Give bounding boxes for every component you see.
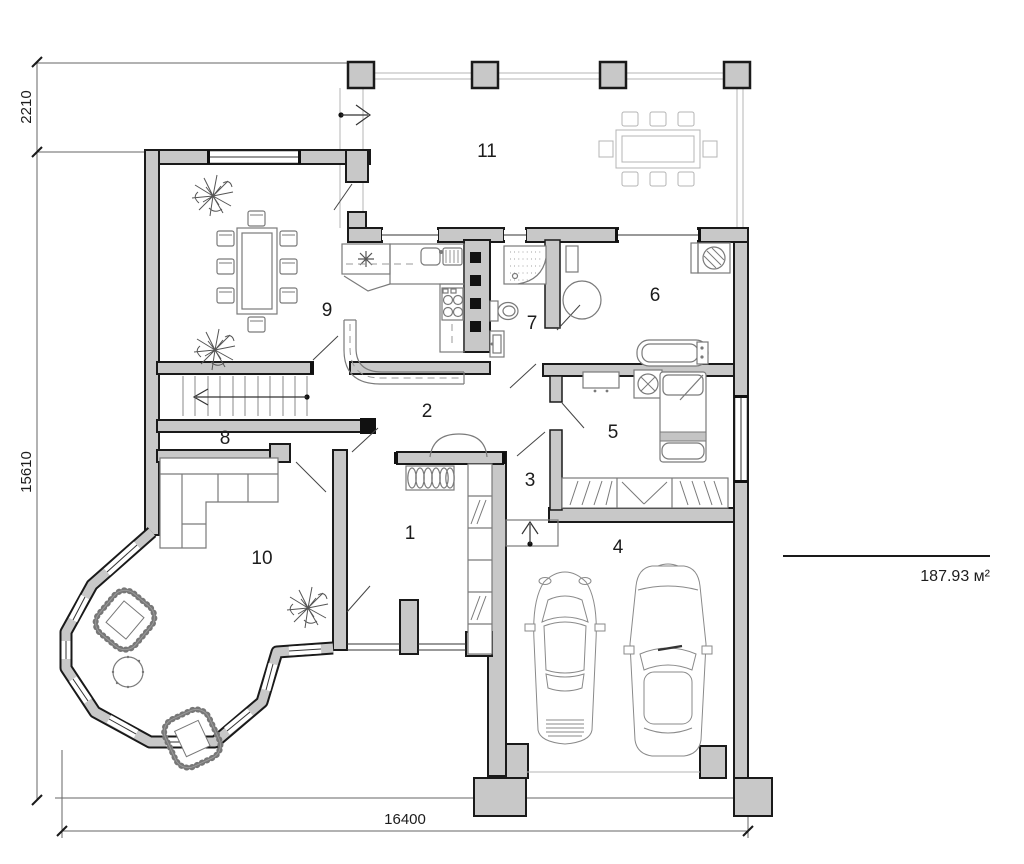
shower-icon bbox=[504, 246, 546, 284]
bedroom-5 bbox=[562, 370, 728, 508]
terrace-dining-table-icon bbox=[599, 112, 717, 186]
bathroom-7 bbox=[490, 246, 546, 357]
total-area-annotation: 187.93 м² bbox=[783, 556, 991, 585]
washing-machine-icon bbox=[691, 243, 730, 273]
dining-table-icon bbox=[217, 211, 297, 332]
terrace-column bbox=[472, 62, 498, 88]
floor-plan-page: 2210 15610 16400 bbox=[0, 0, 1024, 864]
washbasin-icon bbox=[490, 331, 504, 357]
room-label-5: 5 bbox=[608, 422, 619, 443]
staircase bbox=[183, 376, 310, 416]
dining-area bbox=[192, 175, 297, 370]
toilet-icon bbox=[490, 301, 518, 321]
car-icon bbox=[525, 572, 605, 744]
terrace-column bbox=[724, 62, 750, 88]
room-label-4: 4 bbox=[613, 537, 624, 558]
room-label-8: 8 bbox=[220, 428, 231, 449]
entry-arrow-icon bbox=[522, 522, 538, 547]
corner-sofa-icon bbox=[160, 458, 278, 548]
terrace-column bbox=[600, 62, 626, 88]
plant-icon bbox=[287, 587, 328, 628]
wall-cabinet-icon bbox=[566, 246, 578, 272]
entry-porch bbox=[506, 520, 558, 547]
room-label-10: 10 bbox=[251, 548, 272, 569]
fan-vent-icon bbox=[634, 370, 662, 398]
room-label-1: 1 bbox=[405, 523, 416, 544]
hall-closet-icon bbox=[468, 464, 492, 654]
desk-icon bbox=[583, 372, 619, 392]
terrace-column bbox=[348, 62, 374, 88]
room-label-11: 11 bbox=[477, 141, 497, 162]
stove-icon bbox=[440, 284, 464, 352]
kitchen-sink-icon bbox=[421, 248, 462, 265]
dim-terrace-depth: 2210 bbox=[18, 90, 35, 123]
room-label-7: 7 bbox=[527, 313, 538, 334]
total-area-label: 187.93 м² bbox=[920, 568, 990, 585]
garage bbox=[525, 564, 712, 772]
round-table-icon bbox=[112, 656, 144, 688]
fridge-icon bbox=[342, 244, 390, 291]
dim-left-height: 15610 bbox=[18, 451, 35, 493]
room-label-6: 6 bbox=[650, 285, 661, 306]
room-label-3: 3 bbox=[525, 470, 536, 491]
terrace bbox=[338, 62, 750, 232]
plant-icon bbox=[192, 175, 233, 216]
floor-plan-canvas: 2210 15610 16400 bbox=[0, 0, 1024, 864]
bathroom-6 bbox=[563, 243, 730, 366]
bathtub-icon bbox=[637, 340, 708, 366]
radiator-bench-icon bbox=[406, 466, 454, 490]
wicker-armchair-icon bbox=[90, 585, 160, 656]
dim-bottom-width: 16400 bbox=[384, 811, 426, 828]
bed-icon bbox=[660, 372, 706, 462]
room-label-9: 9 bbox=[322, 300, 333, 321]
room-label-2: 2 bbox=[422, 401, 433, 422]
terrace-entry-arrow-icon bbox=[338, 105, 370, 125]
wardrobe-icon bbox=[562, 478, 728, 508]
stairs-direction-arrow-icon bbox=[194, 389, 310, 405]
car-icon bbox=[624, 564, 712, 756]
round-shower-cabin-icon bbox=[563, 281, 601, 319]
